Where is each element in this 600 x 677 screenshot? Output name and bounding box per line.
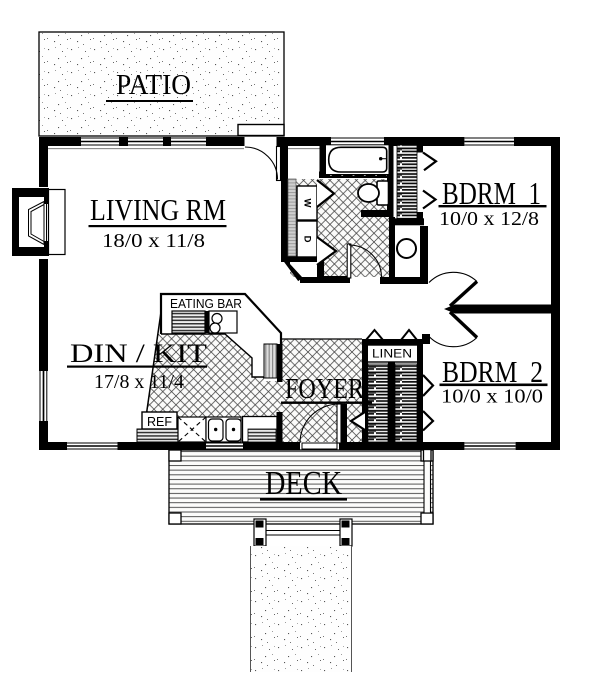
svg-text:17/8 x 11/4: 17/8 x 11/4 [94,371,184,393]
svg-text:LINEN: LINEN [372,347,412,361]
svg-text:EATING BAR: EATING BAR [170,297,242,311]
svg-text:10/0 x 12/8: 10/0 x 12/8 [439,208,539,230]
svg-text:18/0 x 11/8: 18/0 x 11/8 [102,230,205,252]
svg-text:D: D [302,236,313,243]
svg-text:10/0 x 10/0: 10/0 x 10/0 [441,386,543,408]
svg-text:LIVING RM: LIVING RM [90,192,226,227]
svg-text:DIN / KIT: DIN / KIT [70,339,207,368]
svg-text:PATIO: PATIO [116,70,191,101]
svg-text:DECK: DECK [265,465,342,502]
svg-text:REF: REF [147,415,172,429]
svg-text:FOYER: FOYER [285,374,364,405]
svg-text:W: W [302,199,313,208]
